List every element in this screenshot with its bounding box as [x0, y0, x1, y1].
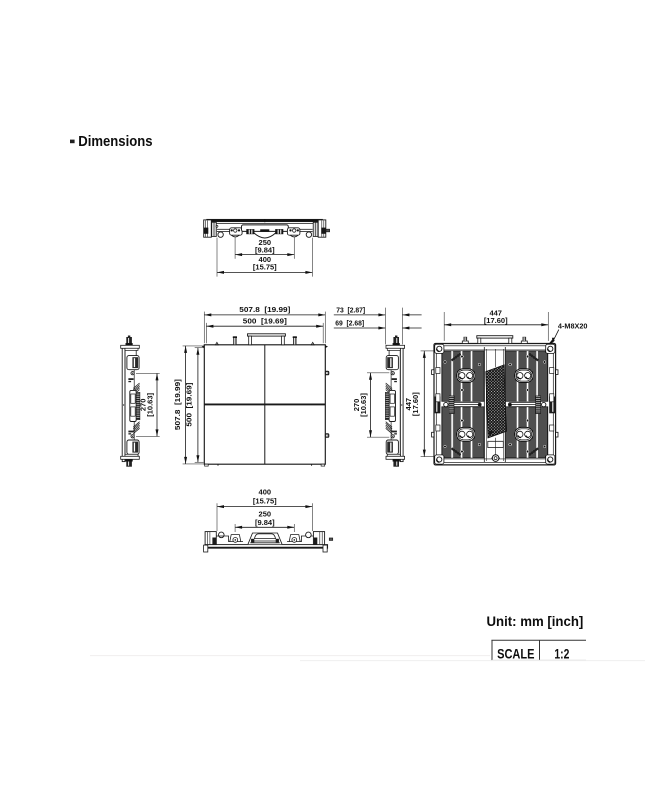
svg-text:507.8 [19.99]: 507.8 [19.99]: [239, 305, 291, 314]
svg-text:1:2: 1:2: [554, 646, 569, 661]
svg-text:[10.63]: [10.63]: [145, 393, 154, 417]
svg-text:[9.84]: [9.84]: [255, 518, 275, 527]
svg-text:4-M8X20: 4-M8X20: [558, 322, 588, 331]
svg-text:[15.75]: [15.75]: [253, 496, 277, 505]
svg-text:Unit: mm [inch]: Unit: mm [inch]: [487, 613, 584, 629]
svg-text:69 [2.68]: 69 [2.68]: [335, 319, 364, 328]
svg-text:500 [19.69]: 500 [19.69]: [243, 316, 288, 325]
svg-text:[17.60]: [17.60]: [484, 316, 508, 325]
svg-text:500 [19.69]: 500 [19.69]: [185, 382, 194, 427]
svg-text:[15.75]: [15.75]: [253, 263, 277, 272]
svg-text:[9.84]: [9.84]: [255, 246, 275, 255]
svg-text:507.8 [19.99]: 507.8 [19.99]: [173, 379, 182, 431]
svg-text:Dimensions: Dimensions: [78, 133, 152, 150]
svg-text:400: 400: [259, 487, 272, 496]
svg-text:[17.60]: [17.60]: [411, 392, 420, 416]
svg-text:[10.63]: [10.63]: [359, 393, 368, 417]
svg-text:73 [2.87]: 73 [2.87]: [336, 305, 365, 314]
svg-text:SCALE: SCALE: [497, 646, 534, 661]
